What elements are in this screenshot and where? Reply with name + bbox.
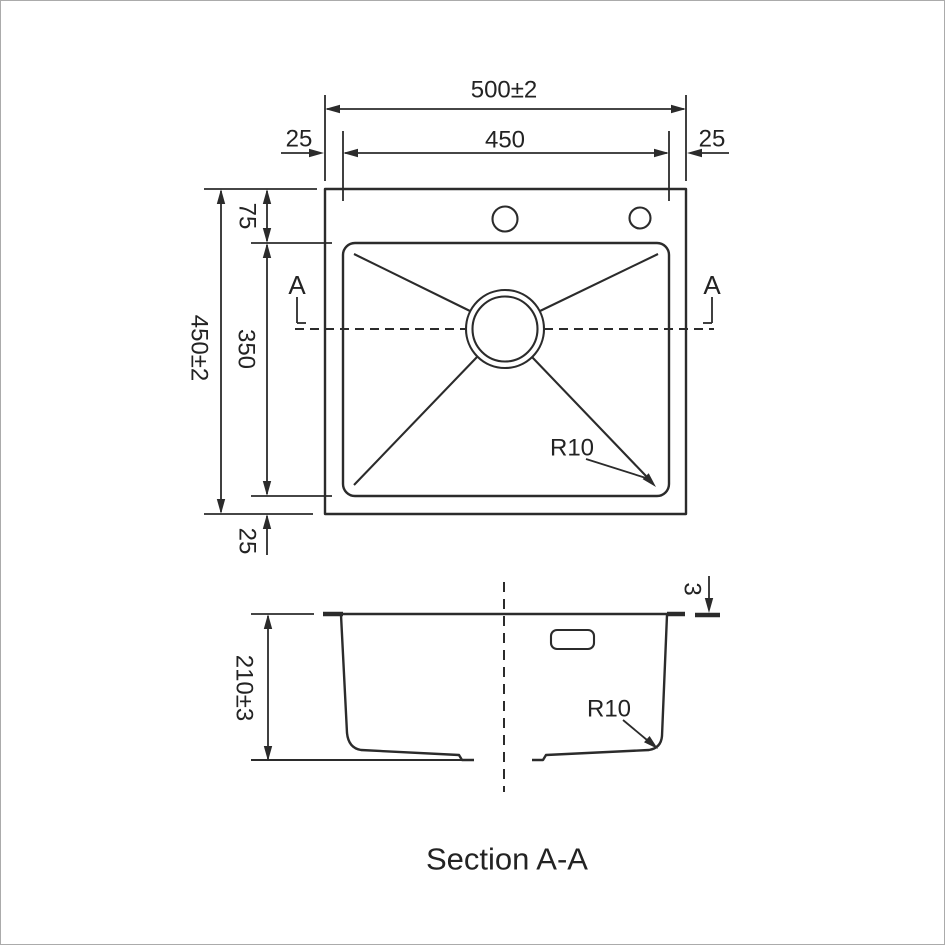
drain-inner-circle [473, 297, 538, 362]
sink-outer-rect [325, 189, 686, 514]
arrowhead [264, 614, 272, 629]
bottom-margin-label: 25 [234, 528, 261, 555]
plan-corner-radius-label: R10 [550, 435, 594, 462]
section-view: R10 [251, 582, 720, 792]
overall-height-label: 450±2 [186, 315, 213, 382]
rim-thickness-label: 3 [679, 582, 706, 595]
arrowhead [654, 149, 669, 157]
drain-outer-circle [466, 290, 544, 368]
bowl-profile-right [532, 615, 667, 760]
arrowhead [263, 189, 271, 204]
section-corner-radius-label: R10 [587, 696, 631, 723]
inner-width-label: 450 [485, 127, 525, 154]
bowl-profile-left [341, 615, 474, 760]
radius-leader-line [623, 720, 647, 740]
section-marker-right: A [703, 270, 721, 300]
arrowhead [263, 243, 271, 258]
basin-crease-bottom-left [354, 357, 477, 485]
arrowhead [263, 481, 271, 496]
faucet-hole-right [630, 208, 651, 229]
plan-view: R10 A A [288, 189, 721, 514]
arrowhead [343, 149, 358, 157]
section-dimensions: 210±3 3 [231, 576, 714, 761]
corner-radius-arrowhead [644, 736, 658, 749]
arrowhead [671, 105, 686, 113]
faucet-hole-center [493, 207, 518, 232]
technical-drawing-page: R10 A A 500±2 450 25 25 [0, 0, 945, 945]
inner-height-label: 350 [233, 329, 260, 369]
basin-crease-top-right [540, 254, 658, 311]
right-margin-label: 25 [699, 126, 726, 153]
plan-dimensions: 500±2 450 25 25 450±2 75 350 [186, 77, 730, 556]
arrowhead [325, 105, 340, 113]
arrowhead [264, 746, 272, 761]
overall-width-label: 500±2 [471, 77, 538, 104]
overflow-hole [551, 630, 594, 649]
arrowhead [217, 499, 225, 514]
arrowhead [217, 189, 225, 204]
sink-basin-rect [343, 243, 669, 496]
top-margin-label: 75 [234, 203, 261, 230]
arrowhead [263, 514, 271, 529]
section-title: Section A-A [426, 842, 588, 877]
arrowhead [705, 598, 713, 613]
left-margin-label: 25 [286, 126, 313, 153]
depth-label: 210±3 [231, 655, 258, 722]
arrowhead [263, 228, 271, 243]
radius-leader-line [586, 459, 646, 478]
section-marker-left: A [288, 270, 306, 300]
sink-dimension-drawing: R10 A A 500±2 450 25 25 [1, 1, 945, 945]
basin-crease-top-left [354, 254, 470, 311]
